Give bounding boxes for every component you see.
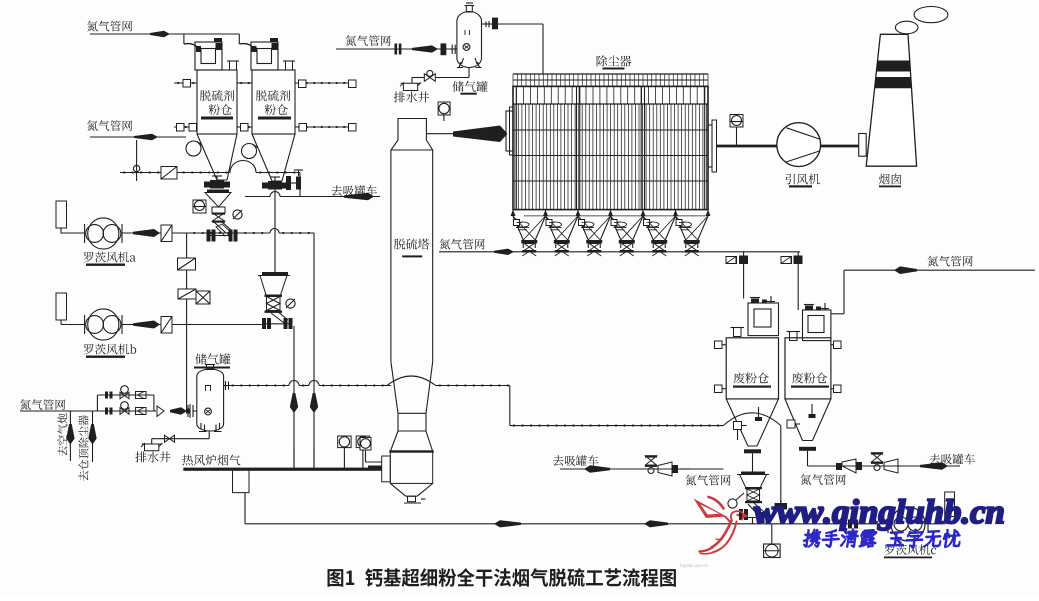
svg-text:hqzda.com.cn: hqzda.com.cn	[680, 563, 709, 568]
